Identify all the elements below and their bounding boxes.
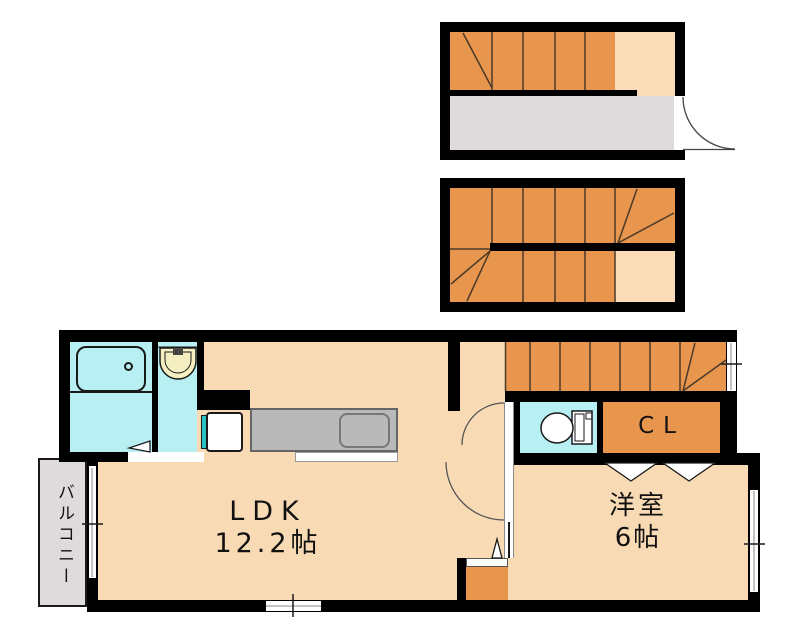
upper-stair-landing	[615, 32, 675, 96]
wall-closet-right	[720, 402, 726, 453]
refrigerator-space	[206, 412, 243, 452]
storage-box-wall	[457, 558, 466, 601]
bathtub	[76, 346, 146, 392]
window-south	[266, 601, 321, 611]
wall-under-stairs	[505, 391, 737, 402]
bathroom-divider-line	[70, 391, 152, 393]
entrance-door-swing	[683, 97, 735, 150]
bathtub-drain	[124, 362, 133, 371]
wall-kitchen-corner	[197, 390, 250, 410]
partition-wall-line	[508, 522, 510, 558]
kitchen-counter-front	[295, 452, 398, 462]
entrance-corridor	[450, 96, 675, 150]
washroom-doorway	[128, 452, 204, 462]
entrance-door-opening	[674, 96, 685, 150]
floorplan-canvas: LDK 12.2帖 洋室 6帖 CL バルコニー	[0, 0, 800, 630]
washroom-corridor	[158, 342, 197, 452]
main-stair-steps	[505, 342, 726, 391]
wall-corridor-kitchen	[197, 335, 204, 392]
upper-stair-steps	[450, 32, 615, 90]
storage-box	[466, 567, 508, 601]
wall-bath-corridor	[152, 335, 158, 452]
wall-top	[59, 330, 737, 342]
balcony-label: バルコニー	[49, 468, 73, 602]
window-stairwell	[727, 342, 736, 391]
wall-left-upper	[59, 330, 70, 462]
window-east	[750, 490, 758, 592]
ldk-room-size: 12.2帖	[183, 528, 353, 559]
mid-stair-stringer-wall	[490, 243, 675, 251]
wall-under-toilet-closet	[506, 453, 760, 465]
western-room-label: 洋室	[592, 492, 684, 522]
kitchen-sink	[339, 413, 390, 448]
toilet-room	[518, 402, 597, 453]
storage-box-top	[466, 558, 508, 567]
appliance-accent-strip	[201, 415, 207, 449]
ldk-room-label: LDK	[183, 496, 353, 527]
window-balcony	[89, 466, 96, 578]
western-room-size: 6帖	[592, 524, 684, 554]
wall-bottom	[87, 600, 760, 612]
mid-stair-landing	[615, 251, 675, 302]
closet-label: CL	[603, 413, 720, 439]
wall-kitchen-hallway	[448, 342, 460, 411]
